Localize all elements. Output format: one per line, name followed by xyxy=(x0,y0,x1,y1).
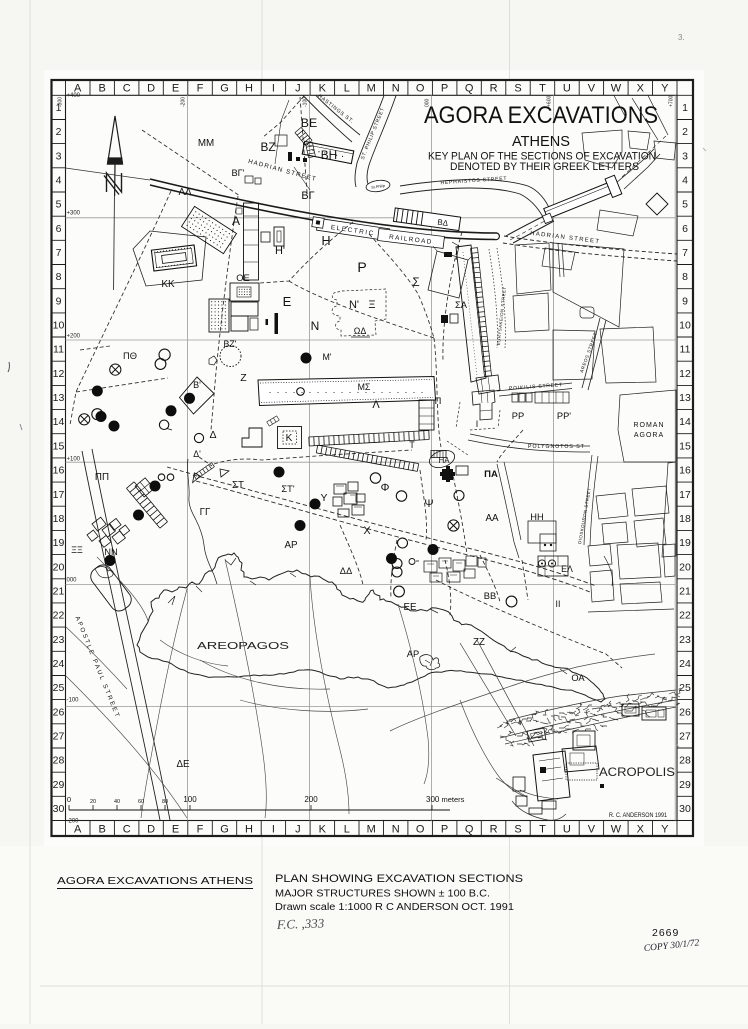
svg-text:6: 6 xyxy=(682,223,688,235)
svg-text:ΔΕ: ΔΕ xyxy=(176,759,190,770)
svg-text:V: V xyxy=(588,83,596,95)
svg-text:5: 5 xyxy=(56,199,62,211)
svg-text:P: P xyxy=(441,83,448,95)
svg-text:300 meters: 300 meters xyxy=(426,795,465,804)
svg-text:POLYGNOTOS ST: POLYGNOTOS ST xyxy=(528,444,585,450)
svg-text:+700: +700 xyxy=(669,96,675,107)
svg-text:200: 200 xyxy=(304,795,318,804)
svg-text:Ν': Ν' xyxy=(349,299,359,311)
svg-text:4: 4 xyxy=(56,175,62,187)
svg-text:AGORA EXCAVATIONS ATHENS: AGORA EXCAVATIONS ATHENS xyxy=(57,876,253,887)
svg-text:28: 28 xyxy=(679,755,691,767)
svg-text:0: 0 xyxy=(67,795,71,804)
svg-text:X: X xyxy=(637,83,645,95)
svg-text:ΒΔ: ΒΔ xyxy=(437,218,449,228)
svg-text:1: 1 xyxy=(682,102,688,114)
svg-text:Ζ: Ζ xyxy=(240,372,247,384)
svg-text:ΡΡ': ΡΡ' xyxy=(557,411,571,421)
svg-text:U: U xyxy=(563,824,571,836)
svg-text:Σ: Σ xyxy=(412,277,419,289)
svg-text:19: 19 xyxy=(679,537,691,549)
svg-text:ΗΗ: ΗΗ xyxy=(530,512,543,522)
svg-text:+300: +300 xyxy=(67,211,81,217)
svg-text:-200: -200 xyxy=(181,97,187,107)
svg-text:M: M xyxy=(367,83,376,95)
svg-text:N: N xyxy=(392,824,400,836)
svg-text:18: 18 xyxy=(53,513,65,525)
svg-text:D: D xyxy=(147,83,155,95)
svg-text:22: 22 xyxy=(679,610,691,622)
svg-text:ΑΡ: ΑΡ xyxy=(284,540,298,551)
svg-text:-200: -200 xyxy=(67,819,80,825)
svg-text:8: 8 xyxy=(682,271,688,283)
svg-text:O: O xyxy=(416,824,425,836)
svg-text:S: S xyxy=(514,83,521,95)
svg-text:ΛΛ: ΛΛ xyxy=(178,187,192,198)
svg-text:5: 5 xyxy=(682,199,688,211)
svg-text:26: 26 xyxy=(679,706,691,718)
svg-text:22: 22 xyxy=(53,610,65,622)
svg-text:12: 12 xyxy=(53,368,65,380)
svg-text:20: 20 xyxy=(679,561,691,573)
svg-text:23: 23 xyxy=(679,634,691,646)
svg-text:15: 15 xyxy=(679,440,691,452)
svg-text:ΕΛ: ΕΛ xyxy=(561,564,573,574)
svg-text:ΚΚ: ΚΚ xyxy=(161,279,175,290)
svg-text:24: 24 xyxy=(679,658,691,670)
svg-text:18: 18 xyxy=(679,513,691,525)
svg-text:Υ: Υ xyxy=(320,492,327,504)
svg-text:Drawn scale 1:1000 R C: Drawn scale 1:1000 R C ANDERSON OCT. 199… xyxy=(275,902,514,913)
svg-text:ΣΑ: ΣΑ xyxy=(455,300,468,310)
svg-text:ΙΙ: ΙΙ xyxy=(556,599,561,609)
svg-text:AGORA EXCAVATIONS: AGORA EXCAVATIONS xyxy=(424,102,658,129)
svg-text:9: 9 xyxy=(682,295,688,307)
svg-text:Α: Α xyxy=(232,214,240,228)
svg-text:ΠΘ: ΠΘ xyxy=(123,351,137,361)
svg-text:20: 20 xyxy=(90,799,96,805)
svg-text:AGORA: AGORA xyxy=(634,432,664,439)
svg-text:ΜΜ: ΜΜ xyxy=(198,138,214,149)
svg-text:10: 10 xyxy=(53,320,65,332)
svg-text:2: 2 xyxy=(56,126,62,138)
svg-text:27: 27 xyxy=(53,731,65,743)
svg-text:M: M xyxy=(367,824,376,836)
svg-text:O: O xyxy=(416,83,425,95)
svg-text:-100: -100 xyxy=(67,698,80,704)
svg-text:W: W xyxy=(611,824,622,836)
svg-text:3: 3 xyxy=(682,150,688,162)
svg-text:ΣΤ': ΣΤ' xyxy=(281,484,294,494)
svg-text:29: 29 xyxy=(679,779,691,791)
svg-text:15: 15 xyxy=(53,440,65,452)
svg-text:Q: Q xyxy=(465,83,474,95)
svg-text:Κ: Κ xyxy=(286,433,293,444)
svg-text:25: 25 xyxy=(53,682,65,694)
svg-text:Π: Π xyxy=(435,396,442,406)
svg-text:MAJOR STRUCTURES SHOWN ± 10: MAJOR STRUCTURES SHOWN ± 100 B.C. xyxy=(275,889,490,900)
svg-text:Δ: Δ xyxy=(209,429,216,441)
svg-text:17: 17 xyxy=(679,489,691,501)
svg-text:10: 10 xyxy=(679,320,691,332)
svg-text:11: 11 xyxy=(680,344,691,356)
svg-text:27: 27 xyxy=(679,731,691,743)
svg-text:Χ: Χ xyxy=(363,525,371,537)
svg-text:+200: +200 xyxy=(67,334,81,340)
svg-text:30: 30 xyxy=(679,803,691,815)
svg-text:V: V xyxy=(588,824,596,836)
svg-text:16: 16 xyxy=(53,465,65,477)
svg-text:ΩΔ: ΩΔ xyxy=(354,326,367,336)
svg-text:R: R xyxy=(490,83,498,95)
svg-text:J: J xyxy=(295,824,301,836)
svg-text:ΒΖ: ΒΖ xyxy=(260,140,275,154)
svg-text:W: W xyxy=(611,83,622,95)
svg-text:26: 26 xyxy=(53,706,65,718)
svg-text:40: 40 xyxy=(114,799,120,805)
svg-text:S: S xyxy=(514,824,521,836)
svg-text:Ε: Ε xyxy=(283,294,292,309)
svg-text:Y: Y xyxy=(661,83,669,95)
svg-text:G: G xyxy=(220,824,229,836)
svg-text:Q: Q xyxy=(465,824,474,836)
svg-text:U: U xyxy=(563,83,571,95)
svg-text:ΒΓ: ΒΓ xyxy=(301,190,314,202)
svg-text:7: 7 xyxy=(56,247,62,259)
svg-text:ΒΓ': ΒΓ' xyxy=(231,168,244,178)
svg-text:14: 14 xyxy=(53,416,65,428)
svg-text:ΟΕ: ΟΕ xyxy=(236,273,249,283)
svg-text:R. C. ANDERSON 1991: R. C. ANDERSON 1991 xyxy=(609,812,667,819)
svg-text:T: T xyxy=(539,824,546,836)
svg-text:3: 3 xyxy=(56,150,62,162)
svg-text:30: 30 xyxy=(53,803,65,815)
svg-text:ATHENS: ATHENS xyxy=(512,134,570,150)
svg-text:+400: +400 xyxy=(67,93,81,99)
svg-text:100: 100 xyxy=(183,795,197,804)
svg-text:E: E xyxy=(172,83,179,95)
svg-text:4: 4 xyxy=(682,175,688,187)
svg-text:ΞΞ: ΞΞ xyxy=(71,545,83,555)
svg-text:A: A xyxy=(74,824,82,836)
svg-text:PLAN SHOWING EXCAVATION SEC: PLAN SHOWING EXCAVATION SECTIONS xyxy=(275,873,523,885)
svg-text:23: 23 xyxy=(53,634,65,646)
svg-text:ΡΡ: ΡΡ xyxy=(512,411,524,421)
svg-text:17: 17 xyxy=(53,489,65,501)
svg-text:60: 60 xyxy=(138,799,144,805)
svg-text:20: 20 xyxy=(53,561,65,573)
svg-text:Ι: Ι xyxy=(476,419,479,429)
svg-text:Τ: Τ xyxy=(409,440,415,450)
svg-text:Η': Η' xyxy=(275,245,285,257)
svg-text:29: 29 xyxy=(53,779,65,791)
svg-text:Μ': Μ' xyxy=(322,352,331,362)
svg-text:Φ: Φ xyxy=(381,482,390,494)
svg-text:000: 000 xyxy=(67,578,78,584)
svg-text:F.C. ,333: F.C. ,333 xyxy=(276,915,325,932)
svg-text:ACROPOLIS: ACROPOLIS xyxy=(599,767,675,779)
svg-text:G: G xyxy=(220,83,229,95)
svg-text:13: 13 xyxy=(53,392,65,404)
svg-text:14: 14 xyxy=(679,416,691,428)
svg-text:R: R xyxy=(490,824,498,836)
svg-text:2: 2 xyxy=(682,126,688,138)
svg-text:9: 9 xyxy=(56,295,62,307)
svg-text:+100: +100 xyxy=(67,457,81,463)
svg-text:H: H xyxy=(245,824,253,836)
svg-text:ΝΝ: ΝΝ xyxy=(104,547,117,557)
svg-text:6: 6 xyxy=(56,223,62,235)
svg-text:T: T xyxy=(539,83,546,95)
svg-text:Η: Η xyxy=(321,234,330,248)
svg-text:P: P xyxy=(441,824,448,836)
svg-text:I: I xyxy=(272,83,275,95)
svg-text:11: 11 xyxy=(53,344,64,356)
svg-text:ΒΕ: ΒΕ xyxy=(301,116,317,130)
svg-text:F: F xyxy=(197,83,204,95)
svg-text:ΗΑ: ΗΑ xyxy=(439,456,451,465)
svg-text:ΒΗ: ΒΗ xyxy=(321,148,337,162)
svg-text:D: D xyxy=(147,824,155,836)
svg-text:12: 12 xyxy=(679,368,691,380)
svg-text:19: 19 xyxy=(53,537,65,549)
svg-text:2669: 2669 xyxy=(652,927,679,939)
svg-text:F: F xyxy=(197,824,204,836)
svg-text:ΖΖ: ΖΖ xyxy=(473,637,485,648)
svg-text:ΓΓ: ΓΓ xyxy=(200,507,211,518)
svg-text:Ξ: Ξ xyxy=(368,299,375,311)
svg-text:K: K xyxy=(319,824,327,836)
svg-text:ΔΔ: ΔΔ xyxy=(340,566,352,576)
svg-text:ΣΤ: ΣΤ xyxy=(232,480,244,491)
svg-text:J: J xyxy=(295,83,301,95)
svg-text:L: L xyxy=(344,83,350,95)
svg-text:C: C xyxy=(123,824,131,836)
svg-text:Ν: Ν xyxy=(311,319,320,333)
svg-text:21: 21 xyxy=(53,586,65,598)
svg-text:Β': Β' xyxy=(193,380,201,390)
svg-text:B: B xyxy=(99,824,106,836)
svg-text:B: B xyxy=(99,83,106,95)
svg-text:21: 21 xyxy=(679,586,691,598)
svg-text:ΠΠ: ΠΠ xyxy=(95,472,109,483)
svg-text:Y: Y xyxy=(661,824,669,836)
svg-text:Λ: Λ xyxy=(372,399,380,411)
svg-text:ΒΖ': ΒΖ' xyxy=(224,339,237,349)
svg-text:Δ': Δ' xyxy=(193,449,201,459)
svg-text:ΜΣ: ΜΣ xyxy=(358,382,371,392)
svg-text:16: 16 xyxy=(679,465,691,477)
svg-text:ROMAN: ROMAN xyxy=(633,422,664,429)
svg-text:3.: 3. xyxy=(678,33,685,42)
svg-text:DENOTED BY THEIR GREEK LETTERS: DENOTED BY THEIR GREEK LETTERS xyxy=(450,161,639,173)
svg-text:24: 24 xyxy=(53,658,65,670)
svg-text:N: N xyxy=(392,83,400,95)
svg-text:ΑΑ: ΑΑ xyxy=(485,513,499,524)
svg-text:80: 80 xyxy=(162,799,168,805)
svg-text:H: H xyxy=(245,83,253,95)
svg-text:-300: -300 xyxy=(58,97,64,107)
svg-text:I: I xyxy=(272,824,275,836)
svg-text:E: E xyxy=(172,824,179,836)
svg-text:Ρ: Ρ xyxy=(357,259,366,275)
svg-text:8: 8 xyxy=(56,271,62,283)
svg-text:7: 7 xyxy=(682,247,688,259)
svg-text:28: 28 xyxy=(53,755,65,767)
svg-text:L: L xyxy=(344,824,350,836)
svg-text:ΒΒ: ΒΒ xyxy=(484,591,496,601)
svg-text:Ψ: Ψ xyxy=(424,498,433,510)
svg-text:ΠΑ: ΠΑ xyxy=(484,469,498,480)
svg-text:C: C xyxy=(123,83,131,95)
svg-text:X: X xyxy=(637,824,645,836)
svg-text:13: 13 xyxy=(679,392,691,404)
